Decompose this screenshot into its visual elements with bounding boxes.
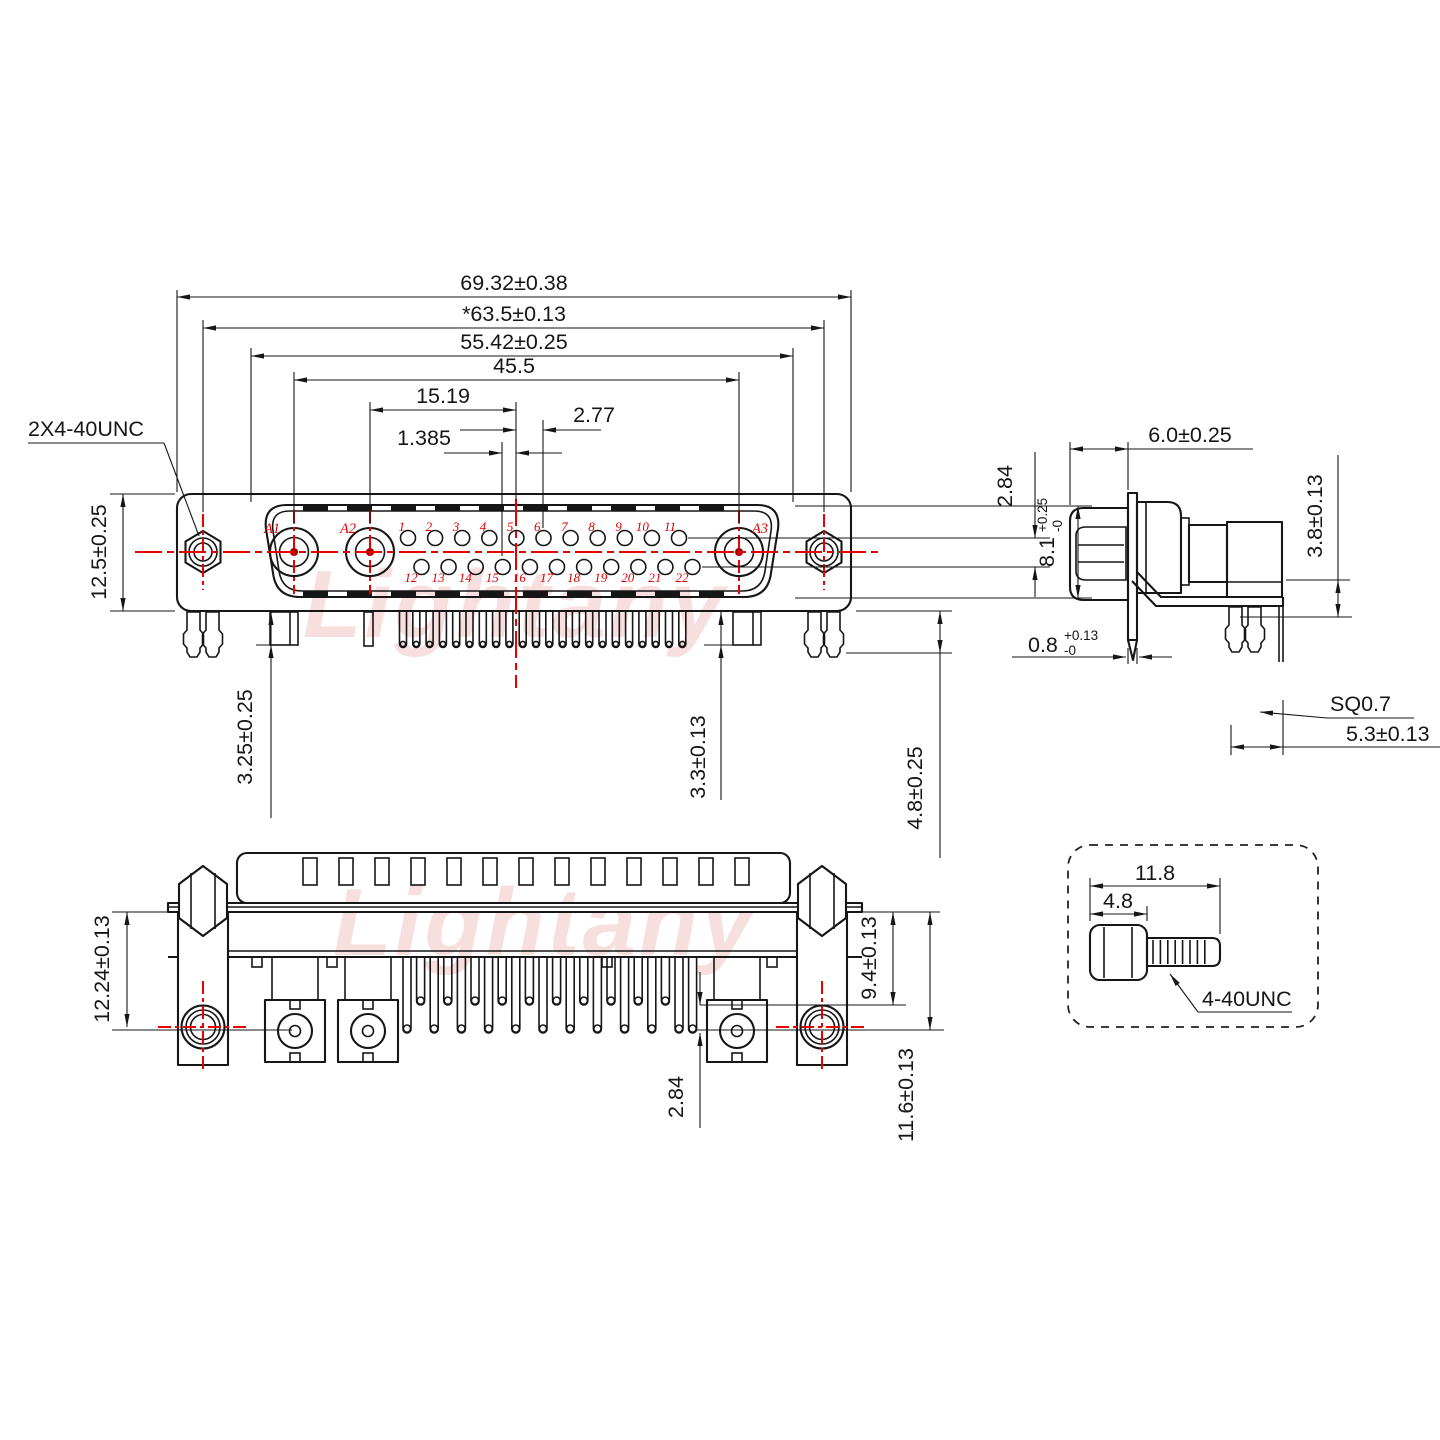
boardlock-prong	[1226, 607, 1246, 652]
bottom-pin-tip	[499, 997, 506, 1004]
ground-tab	[479, 504, 504, 511]
ground-tab	[611, 591, 636, 598]
boardlock-prong	[824, 612, 844, 657]
screw-threads	[1153, 940, 1205, 964]
boardlock-prong	[184, 612, 204, 657]
svg-text:+0.13: +0.13	[1064, 628, 1098, 643]
dim-mount-span: *63.5±0.13	[462, 302, 566, 326]
ground-tab	[699, 591, 724, 598]
pin-number-label: 16	[513, 570, 527, 585]
bottom-pin-tip	[485, 1025, 492, 1032]
bottom-pin-tip	[580, 997, 587, 1004]
dim-row-offset: 2.84	[993, 465, 1017, 507]
dim-long-pins: 11.6±0.13	[894, 1048, 918, 1142]
pin-number-label: 15	[486, 570, 500, 585]
mcx-block	[707, 1000, 767, 1062]
bottom-pin-tip	[526, 997, 533, 1004]
dim-front-depth: 6.0±0.25	[1148, 423, 1232, 447]
pin-number-label: 3	[452, 519, 460, 534]
pin-number-label: 11	[664, 519, 676, 534]
bottom-pin-tip	[594, 1025, 601, 1032]
ground-tab	[347, 591, 372, 598]
svg-text:+0.25: +0.25	[1035, 498, 1050, 532]
pin-number-label: 20	[621, 570, 635, 585]
dim-bracket-height: 12.24±0.13	[90, 915, 114, 1022]
pin-number-label: 6	[534, 519, 541, 534]
boardlock-prong	[203, 612, 223, 657]
dim-row-offset-bottom: 2.84	[664, 1076, 688, 1118]
pin-number-label: 19	[594, 570, 608, 585]
dim-flange-height: 12.5±0.25	[87, 504, 111, 600]
mcx-neck	[272, 957, 318, 1000]
bottom-pin-tip	[417, 997, 424, 1004]
side-rear-block	[1227, 522, 1282, 597]
dim-leg-a3: 3.3±0.13	[686, 715, 710, 799]
svg-text:8.1: 8.1	[1035, 537, 1059, 567]
thread-callout: 2X4-40UNC	[28, 417, 144, 441]
svg-text:-0: -0	[1050, 520, 1065, 532]
mcx-block	[338, 1000, 398, 1062]
side-shell	[1070, 508, 1128, 600]
pin-number-label: 13	[432, 570, 446, 585]
boardlocks-side	[1226, 607, 1265, 652]
dim-a2-to-center: 15.19	[416, 384, 470, 408]
pin-number-label: 14	[459, 570, 473, 585]
ground-tab	[655, 504, 680, 511]
dim-pin-offset: 5.3±0.13	[1346, 722, 1430, 746]
ground-tab	[699, 504, 724, 511]
bottom-pin-tip	[444, 997, 451, 1004]
coax-label-a2: A2	[339, 521, 356, 537]
bottom-pin-tip	[675, 1025, 682, 1032]
dim-leg-a1: 3.25±0.25	[233, 689, 257, 785]
bottom-pin-tip	[512, 1025, 519, 1032]
coax-leg-a3	[733, 612, 761, 645]
pin-number-label: 8	[588, 519, 595, 534]
dim-half-pitch: 1.385	[397, 426, 451, 450]
watermark-text: Lightany	[333, 869, 759, 976]
ground-tab	[435, 591, 460, 598]
pin-number-label: 1	[399, 519, 406, 534]
bottom-pin-tip	[458, 1025, 465, 1032]
screw-head	[1090, 925, 1147, 980]
mcx-block	[265, 1000, 325, 1062]
pin-number-label: 12	[405, 570, 419, 585]
nub	[252, 957, 262, 967]
coax-label-a1: A1	[263, 521, 280, 537]
ground-tab	[391, 504, 416, 511]
bottom-pin-tip	[539, 1025, 546, 1032]
bottom-pin-tip	[689, 1025, 696, 1032]
dim-pin-pitch: 2.77	[573, 403, 615, 427]
pin-number-label: 10	[636, 519, 650, 534]
side-flange-tip	[1128, 640, 1137, 660]
bottom-pin-tip	[567, 1025, 574, 1032]
svg-text:0.8: 0.8	[1028, 633, 1058, 657]
boardlock-prong	[1245, 607, 1265, 652]
bottom-pin-tip	[635, 997, 642, 1004]
bottom-pin-tip	[621, 1025, 628, 1032]
pin-number-label: 2	[426, 519, 433, 534]
pin-number-label: 9	[615, 519, 622, 534]
dim-screw-length: 11.8	[1135, 861, 1175, 885]
side-insulator	[1189, 525, 1227, 582]
ground-tab	[611, 504, 636, 511]
coax-leg-a1	[270, 612, 298, 645]
svg-text:-0: -0	[1064, 643, 1076, 658]
bottom-pin-tip	[662, 997, 669, 1004]
bottom-pin-tip	[553, 997, 560, 1004]
pin-number-label: 5	[507, 519, 514, 534]
screw-shank	[1147, 938, 1220, 966]
ground-tab	[479, 591, 504, 598]
dim-bracket-drop: 3.8±0.13	[1303, 474, 1327, 558]
side-view: 6.0±0.25 3.8±0.13 0.8 +0.13 -0 SQ0.7 5.3…	[1012, 423, 1440, 755]
drawing-page: Lightany Lightany A1 A2 A3 1	[0, 0, 1440, 1440]
dim-screw-head: 4.8	[1103, 889, 1133, 913]
boardlock-prong	[805, 612, 825, 657]
screw-detail: 11.8 4.8 4-40UNC	[1068, 845, 1318, 1027]
ground-tab	[303, 591, 328, 598]
bottom-pin-tip	[431, 1025, 438, 1032]
pin-number-label: 7	[561, 519, 568, 534]
pin-number-label: 22	[676, 570, 690, 585]
technical-drawing: Lightany Lightany A1 A2 A3 1	[0, 0, 1440, 1440]
side-strip	[1181, 518, 1189, 585]
pin-number-label: 21	[648, 570, 661, 585]
bottom-pin-tip	[607, 997, 614, 1004]
ground-tab	[435, 504, 460, 511]
coax-label-a3: A3	[751, 521, 768, 537]
mcx-blocks	[265, 1000, 767, 1062]
dim-coax-span: 45.5	[493, 354, 535, 378]
ground-tab	[523, 591, 548, 598]
ground-tab	[567, 591, 592, 598]
dim-shell-width: 55.42±0.25	[460, 330, 567, 354]
ground-tab	[347, 504, 372, 511]
ground-tab	[523, 504, 548, 511]
pin-number-label: 4	[480, 519, 487, 534]
pin-number-label: 18	[567, 570, 581, 585]
wafer-slot	[303, 858, 317, 885]
pin-number-label: 17	[540, 570, 554, 585]
pin-square-callout: SQ0.7	[1330, 692, 1391, 716]
dim-flange-thickness: 0.8 +0.13 -0	[1028, 628, 1098, 658]
ground-tab	[303, 504, 328, 511]
nub	[767, 957, 777, 967]
screw-thread-callout: 4-40UNC	[1202, 987, 1292, 1011]
dim-slot-height: 8.1 +0.25 -0	[1035, 498, 1065, 567]
bottom-pin-tip	[648, 1025, 655, 1032]
dim-boardlock-len: 4.8±0.25	[903, 746, 927, 830]
ground-tab	[567, 504, 592, 511]
side-flange	[1128, 493, 1137, 640]
ground-tab	[391, 591, 416, 598]
ground-tab	[655, 591, 680, 598]
bottom-pin-tip	[403, 1025, 410, 1032]
bottom-pin-tip	[471, 997, 478, 1004]
dim-total-width: 69.32±0.38	[460, 271, 567, 295]
dim-short-pins: 9.4±0.13	[857, 916, 881, 1000]
side-screw-head	[1076, 527, 1126, 580]
